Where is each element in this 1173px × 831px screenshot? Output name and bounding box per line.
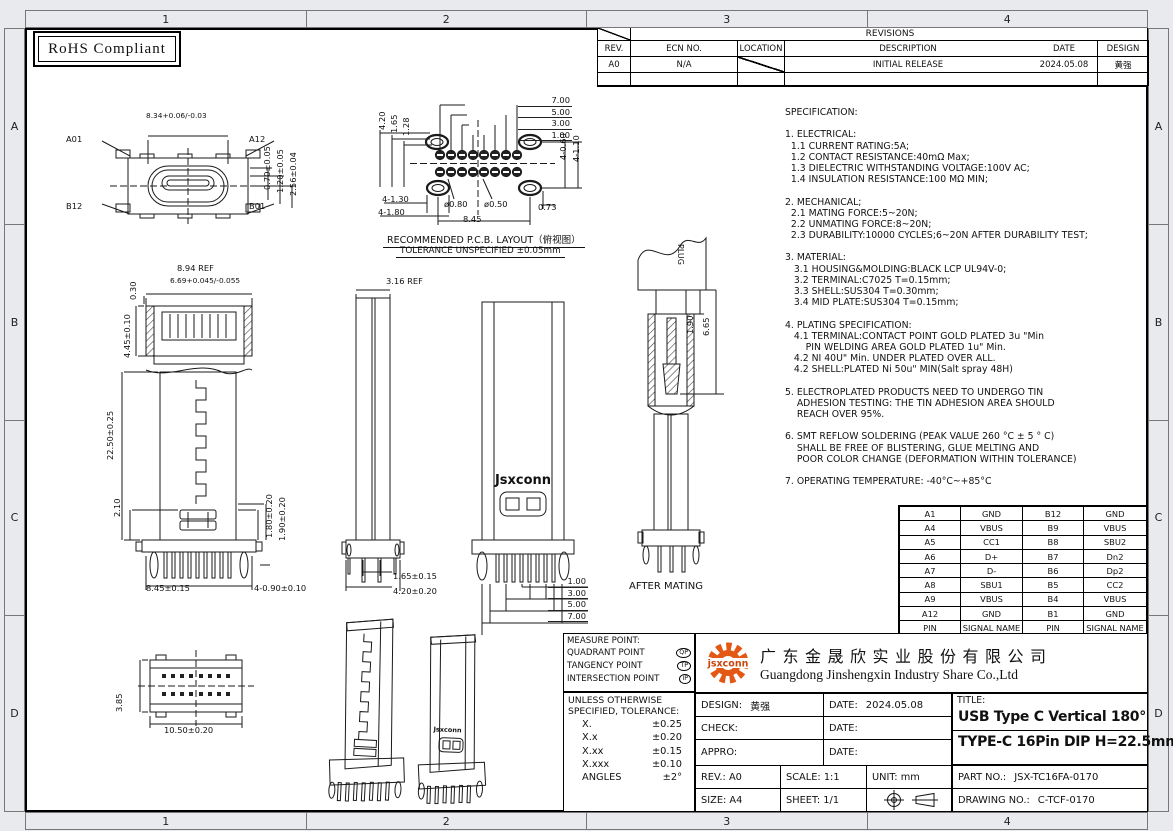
dim-label: 8.45±0.15: [146, 583, 190, 593]
dim-label: 4.45±0.10: [122, 314, 132, 358]
dim-label: 3.16 REF: [386, 276, 423, 286]
pin-table-row: A9 VBUS B4 VBUS: [900, 593, 1146, 607]
projection-symbol-cell: [866, 788, 952, 812]
spec-line: 2.3 DURABILITY:10000 CYCLES;6~20N AFTER …: [785, 230, 1157, 241]
unit-field: UNIT: mm: [866, 765, 952, 789]
dim-label: 1.00: [548, 576, 588, 588]
pin-table-row: A12 GND B1 GND: [900, 607, 1146, 621]
dim-label: 2.56±0.04: [288, 152, 298, 196]
dim-label: 3.85: [114, 694, 124, 712]
zone-number: 3: [587, 812, 868, 830]
rev-cell: INITIAL RELEASE: [785, 57, 1031, 73]
back-view-drawing: Jsxconn: [460, 288, 590, 598]
dim-label: 7.00: [518, 95, 572, 107]
pin-table-row: A7 D- B6 Dp2: [900, 564, 1146, 578]
plug-label: PLUG: [676, 244, 685, 265]
rohs-badge: RoHS Compliant: [33, 31, 181, 67]
spec-line: [785, 465, 1157, 476]
measure-point-box: MEASURE POINT: QUADRANT POINT QP TANGENC…: [563, 633, 695, 692]
dim-label: 1.20±0.05: [275, 149, 285, 193]
spec-line: [785, 376, 1157, 387]
spec-line: [785, 118, 1157, 129]
zone-strip-left: ABCD: [4, 28, 25, 812]
logo-text: jsxconn: [707, 659, 749, 670]
spec-line: 1.1 CURRENT RATING:5A;: [785, 141, 1157, 152]
dim-label: 4-0.60: [558, 133, 568, 160]
projection-symbol-icon: [882, 791, 942, 809]
pin-assignment-table: A1 GND B12 GND A4 VBUS B9 VBUS A5 CC1 B8…: [898, 505, 1148, 638]
rev-col-header: LOCATION: [738, 41, 785, 57]
spec-line: 3.3 SHELL:SUS304 T=0.30mm;: [785, 286, 1157, 297]
rev-cell: N/A: [631, 57, 738, 73]
spec-line: 4.1 TERMINAL:CONTACT POINT GOLD PLATED 3…: [785, 331, 1157, 342]
spec-line: 3.1 HOUSING&MOLDING:BLACK LCP UL94V-0;: [785, 264, 1157, 275]
spec-line: 6. SMT REFLOW SOLDERING (PEAK VALUE 260 …: [785, 431, 1157, 442]
dim-label: 7.00: [548, 611, 588, 623]
rev-cell: 黄强: [1098, 57, 1149, 73]
pin-label: A12: [249, 134, 265, 144]
dim-label: 0.30: [128, 282, 138, 300]
measure-point-row: TANGENCY POINT TP: [567, 659, 691, 672]
dim-label: 8.34+0.06/-0.03: [146, 111, 207, 120]
dim-label: 1.65±0.15: [393, 571, 437, 581]
pin-label: B12: [66, 201, 82, 211]
measure-point-symbol: TP: [677, 661, 691, 671]
dim-label: 4.20±0.20: [393, 586, 437, 596]
pin-label: B01: [249, 201, 265, 211]
zone-letter: D: [1148, 616, 1169, 812]
dim-label: 3.00: [518, 118, 572, 130]
zone-number: 4: [868, 10, 1149, 28]
spec-line: 1.2 CONTACT RESISTANCE:40mΩ Max;: [785, 152, 1157, 163]
part-no-value: JSX-TC16FA-0170: [1014, 772, 1098, 783]
dim-label: ø0.50: [484, 199, 508, 209]
spec-line: [785, 241, 1157, 252]
zone-letter: B: [4, 225, 25, 421]
bottom-view-drawing: [132, 644, 262, 736]
dim-label: 4-1.80: [378, 207, 405, 217]
measure-point-row: QUADRANT POINT QP: [567, 646, 691, 659]
dim-label: 22.50±0.25: [105, 411, 115, 460]
spec-line: 3.2 TERMINAL:C7025 T=0.15mm;: [785, 275, 1157, 286]
dim-label: 0.70±0.05: [262, 146, 272, 190]
spec-line: SPECIFICATION:: [785, 107, 1157, 118]
dim-label: 4-0.90±0.10: [254, 583, 306, 593]
pin-table-row: A6 D+ B7 Dn2: [900, 550, 1146, 564]
pin-table-row: A8 SBU1 B5 CC2: [900, 578, 1146, 592]
appro-field: APPRO:: [695, 739, 824, 766]
side-view-drawing: [334, 284, 454, 599]
dim-label: 8.94 REF: [177, 263, 214, 273]
spec-line: 4.2 NI 40U" Min. UNDER PLATED OVER ALL.: [785, 353, 1157, 364]
measure-point-title: MEASURE POINT:: [567, 636, 691, 646]
spec-line: [785, 420, 1157, 431]
design-field: DESIGN:黄强: [695, 693, 824, 717]
dim-label: 3.00: [548, 588, 588, 600]
spec-line: [785, 185, 1157, 196]
dim-label: 4-1.30: [382, 194, 409, 204]
spec-line: 1. ELECTRICAL:: [785, 129, 1157, 140]
drawing-sheet: 1234 1234 ABCD ABCD RoHS Compliant REVIS…: [0, 0, 1173, 831]
spec-line: 2.1 MATING FORCE:5~20N;: [785, 208, 1157, 219]
pin-table-row: A4 VBUS B9 VBUS: [900, 521, 1146, 535]
tolerance-row: ANGLES ±2°: [568, 770, 690, 783]
dim-label: 4-1.10: [571, 135, 581, 162]
measure-point-symbol: QP: [676, 648, 691, 658]
rev-cell: 2024.05.08: [1031, 57, 1098, 73]
revisions-corner-cell: [598, 28, 631, 41]
part-no-field: PART NO.:JSX-TC16FA-0170: [952, 765, 1148, 789]
spec-line: 4.2 SHELL:PLATED Ni 50u" MIN(Salt spray …: [785, 364, 1157, 375]
revisions-title: REVISIONS: [631, 28, 1149, 41]
rev-col-header: DATE: [1031, 41, 1098, 57]
company-name-en: Guangdong Jinshengxin Industry Share Co.…: [760, 667, 1053, 683]
tolerance-box: UNLESS OTHERWISE SPECIFIED, TOLERANCE: X…: [563, 692, 695, 812]
drawing-title-line2: TYPE-C 16Pin DIP H=22.5mm: [953, 731, 1147, 752]
pin-table-row: A5 CC1 B8 SBU2: [900, 536, 1146, 550]
dim-label: 8.45: [463, 214, 481, 224]
isometric-views-drawing: Jsxconn: [318, 612, 498, 817]
zone-number: 1: [25, 10, 307, 28]
title-label: TITLE:: [953, 694, 1147, 706]
dim-label: 6.65: [701, 318, 711, 336]
dim-label: 2.10: [112, 499, 122, 517]
dim-label: 10.50±0.20: [164, 725, 213, 735]
tolerance-line2: SPECIFIED, TOLERANCE:: [568, 706, 690, 717]
zone-strip-bottom: 1234: [25, 812, 1148, 830]
zone-letter: D: [4, 616, 25, 812]
drawing-title-line1: USB Type C Vertical 180°: [953, 706, 1147, 731]
zone-strip-top: 1234: [25, 10, 1148, 28]
company-name-cn: 广东金晟欣实业股份有限公司: [760, 643, 1053, 667]
rev-col-header: REV.: [598, 41, 631, 57]
company-block: jsxconn 广东金晟欣实业股份有限公司 Guangdong Jinsheng…: [695, 633, 1148, 693]
design-date-field: DATE:2024.05.08: [823, 693, 952, 717]
dim-label: 1.65: [389, 115, 399, 133]
dim-label: 6.69+0.045/-0.055: [170, 276, 240, 285]
sheet-field: SHEET: 1/1: [780, 788, 867, 812]
tolerance-row: X.xxx ±0.10: [568, 757, 690, 770]
spec-line: POOR COLOR CHANGE (DEFORMATION WITHIN TO…: [785, 454, 1157, 465]
rev-cell: A0: [598, 57, 631, 73]
zone-number: 2: [307, 10, 588, 28]
spec-line: 3.4 MID PLATE:SUS304 T=0.15mm;: [785, 297, 1157, 308]
spec-line: REACH OVER 95%.: [785, 409, 1157, 420]
spec-line: 7. OPERATING TEMPERATURE: -40°C~+85°C: [785, 476, 1157, 487]
dim-label: 1.90: [685, 316, 695, 334]
scale-field: SCALE: 1:1: [780, 765, 867, 789]
dim-label: 1.90±0.20: [277, 497, 287, 541]
size-field: SIZE: A4: [695, 788, 781, 812]
measure-point-row: INTERSECTION POINT IP: [567, 672, 691, 685]
check-date-field: DATE:: [823, 716, 952, 740]
tolerance-line1: UNLESS OTHERWISE: [568, 695, 690, 706]
pcb-tolerance-note: TOLERANCE UNSPECIFIED ±0.05mm: [396, 246, 565, 258]
brand-text-small: Jsxconn: [432, 725, 462, 734]
spec-line: 2.2 UNMATING FORCE:8~20N;: [785, 219, 1157, 230]
tolerance-row: X. ±0.25: [568, 717, 690, 730]
dim-label: 5.00: [548, 599, 588, 611]
drawing-no-value: C-TCF-0170: [1038, 795, 1095, 806]
zone-letter: A: [4, 28, 25, 225]
pin-label: A01: [66, 134, 82, 144]
brand-text: Jsxconn: [494, 473, 551, 488]
zone-number: 1: [25, 812, 307, 830]
top-view-drawing: [60, 128, 310, 233]
spec-line: 3. MATERIAL:: [785, 252, 1157, 263]
dim-label: 5.00: [518, 107, 572, 119]
rohs-label: RoHS Compliant: [38, 36, 176, 62]
specification-block: SPECIFICATION:1. ELECTRICAL: 1.1 CURRENT…: [785, 107, 1157, 487]
spec-line: [785, 308, 1157, 319]
after-mating-caption: AFTER MATING: [629, 581, 703, 592]
zone-number: 3: [587, 10, 868, 28]
check-field: CHECK:: [695, 716, 824, 740]
zone-letter: C: [4, 421, 25, 617]
rev-cell-location: [738, 57, 785, 73]
dim-label: 1.80±0.20: [264, 494, 274, 538]
rev-col-header: DESIGN: [1098, 41, 1149, 57]
design-value: 黄强: [750, 698, 770, 713]
spec-line: SHALL BE FREE OF BLISTERING, GLUE MELTIN…: [785, 443, 1157, 454]
spec-line: 4. PLATING SPECIFICATION:: [785, 320, 1157, 331]
rev-col-header: ECN NO.: [631, 41, 738, 57]
rev-col-header: DESCRIPTION: [785, 41, 1031, 57]
tolerance-row: X.x ±0.20: [568, 730, 690, 743]
spec-line: ADHESION TESTING: THE TIN ADHESION AREA …: [785, 398, 1157, 409]
tolerance-row: X.xx ±0.15: [568, 743, 690, 756]
drawing-no-field: DRAWING NO.:C-TCF-0170: [952, 788, 1148, 812]
dim-label: ø0.80: [444, 199, 468, 209]
dim-label: 4.20: [377, 112, 387, 130]
dim-label: 1.28: [401, 118, 411, 136]
revisions-table: REVISIONS REV. ECN NO. LOCATION DESCRIPT…: [597, 28, 1148, 87]
pin-table-row: A1 GND B12 GND: [900, 507, 1146, 521]
dim-label: 0.73: [538, 202, 556, 212]
spec-line: 1.4 INSULATION RESISTANCE:100 MΩ MIN;: [785, 174, 1157, 185]
company-logo-icon: jsxconn: [704, 639, 752, 687]
zone-number: 4: [868, 812, 1149, 830]
design-date-value: 2024.05.08: [866, 700, 923, 711]
appro-date-field: DATE:: [823, 739, 952, 766]
spec-line: PIN WELDING AREA GOLD PLATED 1u" Min.: [785, 342, 1157, 353]
title-area: TITLE: USB Type C Vertical 180° TYPE-C 1…: [952, 693, 1148, 765]
spec-line: 1.3 DIELECTRIC WITHSTANDING VOLTAGE:100V…: [785, 163, 1157, 174]
measure-point-symbol: IP: [679, 674, 691, 684]
spec-line: 2. MECHANICAL;: [785, 197, 1157, 208]
rev-field: REV.: A0: [695, 765, 781, 789]
after-mating-drawing: PLUG: [616, 218, 736, 586]
spec-line: 5. ELECTROPLATED PRODUCTS NEED TO UNDERG…: [785, 387, 1157, 398]
back-bottom-dims: 1.003.005.007.00: [548, 576, 588, 622]
